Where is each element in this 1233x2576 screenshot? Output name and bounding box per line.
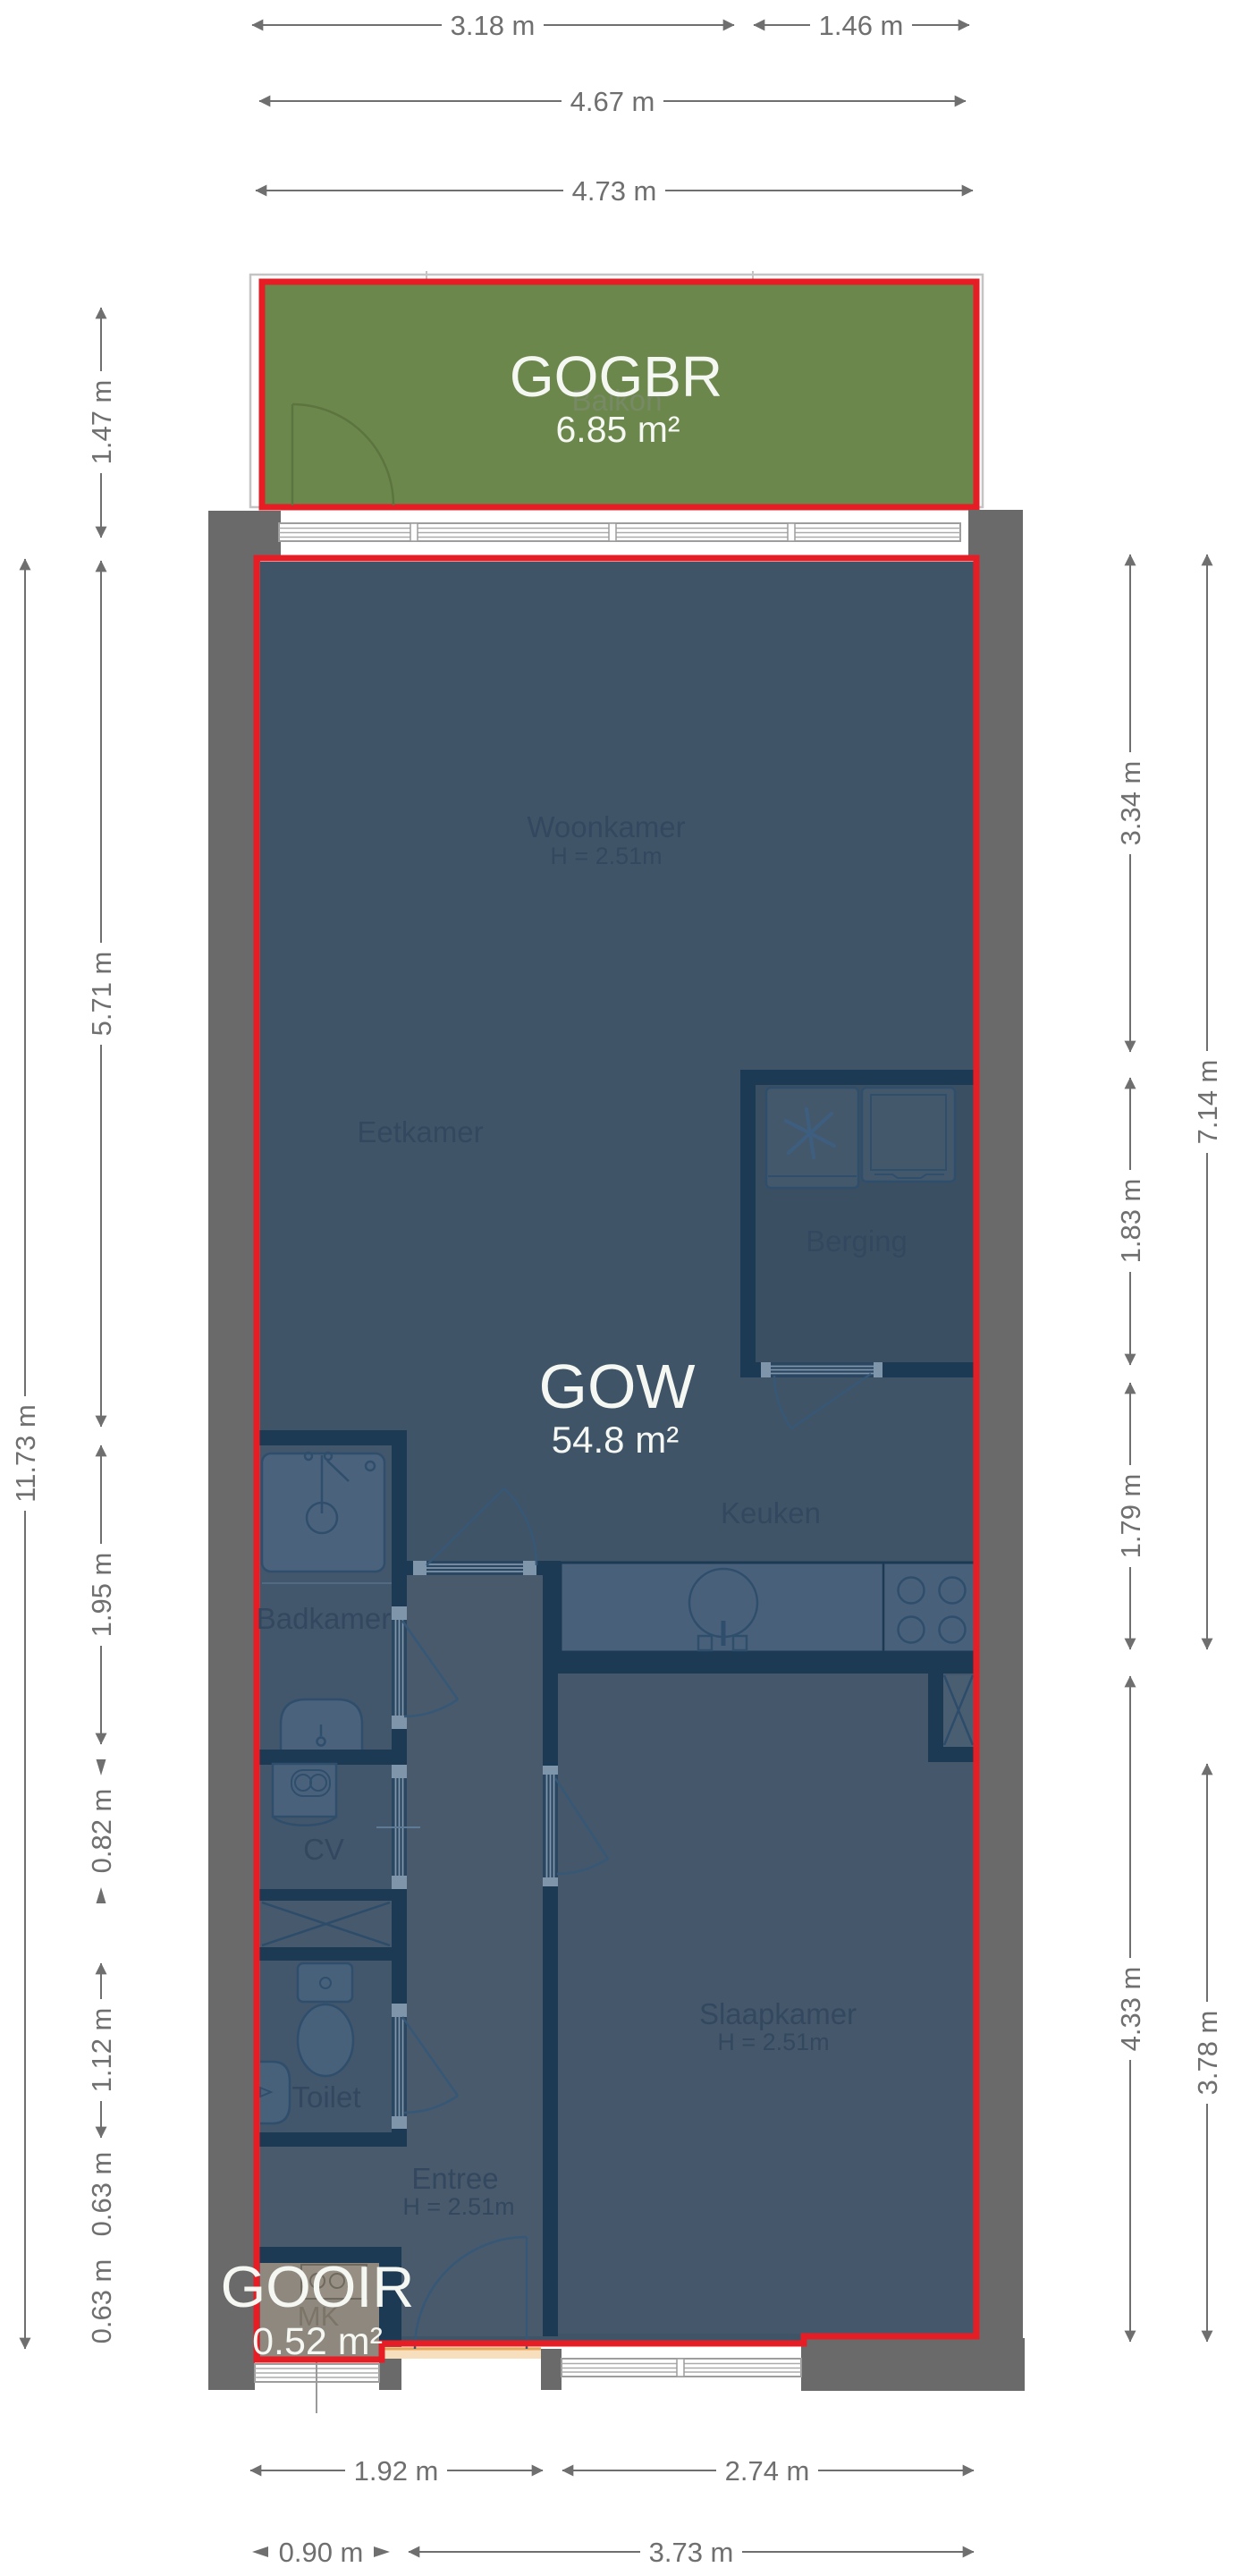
svg-text:5.71 m: 5.71 m <box>86 952 117 1037</box>
svg-text:1.12 m: 1.12 m <box>86 2008 117 2093</box>
svg-text:3.78 m: 3.78 m <box>1192 2011 1223 2096</box>
svg-text:Entree: Entree <box>411 2162 498 2195</box>
svg-text:1.92 m: 1.92 m <box>354 2455 439 2487</box>
svg-text:1.47 m: 1.47 m <box>86 380 117 465</box>
svg-text:1.83 m: 1.83 m <box>1115 1179 1146 1264</box>
svg-text:0.63 m: 0.63 m <box>86 2259 117 2344</box>
svg-text:2.74 m: 2.74 m <box>725 2455 810 2487</box>
svg-text:Toilet: Toilet <box>291 2080 360 2114</box>
svg-text:H = 2.51m: H = 2.51m <box>550 843 662 869</box>
svg-text:6.85 m²: 6.85 m² <box>556 409 680 450</box>
svg-text:GOW: GOW <box>539 1352 696 1421</box>
svg-text:Keuken: Keuken <box>721 1496 821 1529</box>
svg-text:0.82 m: 0.82 m <box>86 1789 117 1874</box>
svg-text:1.46 m: 1.46 m <box>819 10 904 41</box>
svg-text:Slaapkamer: Slaapkamer <box>699 1997 857 2030</box>
svg-text:Woonkamer: Woonkamer <box>527 810 685 843</box>
svg-text:3.34 m: 3.34 m <box>1115 761 1146 846</box>
svg-text:Berging: Berging <box>806 1224 908 1258</box>
svg-text:H = 2.51m: H = 2.51m <box>402 2193 514 2220</box>
svg-text:0.63 m: 0.63 m <box>86 2152 117 2237</box>
svg-text:Eetkamer: Eetkamer <box>357 1115 483 1148</box>
svg-text:4.33 m: 4.33 m <box>1115 1967 1146 2052</box>
svg-text:GOOIR: GOOIR <box>221 2254 415 2319</box>
svg-text:3.73 m: 3.73 m <box>649 2537 734 2568</box>
svg-text:H = 2.51m: H = 2.51m <box>717 2029 829 2055</box>
svg-text:GOGBR: GOGBR <box>510 344 722 409</box>
svg-text:11.73 m: 11.73 m <box>10 1404 41 1503</box>
svg-text:4.73 m: 4.73 m <box>572 175 657 207</box>
svg-text:0.90 m: 0.90 m <box>279 2537 364 2568</box>
svg-text:CV: CV <box>303 1833 344 1866</box>
svg-text:1.95 m: 1.95 m <box>86 1553 117 1638</box>
svg-text:Badkamer: Badkamer <box>257 1602 391 1635</box>
svg-text:3.18 m: 3.18 m <box>451 10 536 41</box>
svg-text:7.14 m: 7.14 m <box>1192 1060 1223 1145</box>
svg-text:54.8 m²: 54.8 m² <box>552 1419 679 1461</box>
svg-text:0.52 m²: 0.52 m² <box>252 2320 383 2363</box>
svg-text:1.79 m: 1.79 m <box>1115 1474 1146 1559</box>
svg-text:4.67 m: 4.67 m <box>570 86 655 117</box>
